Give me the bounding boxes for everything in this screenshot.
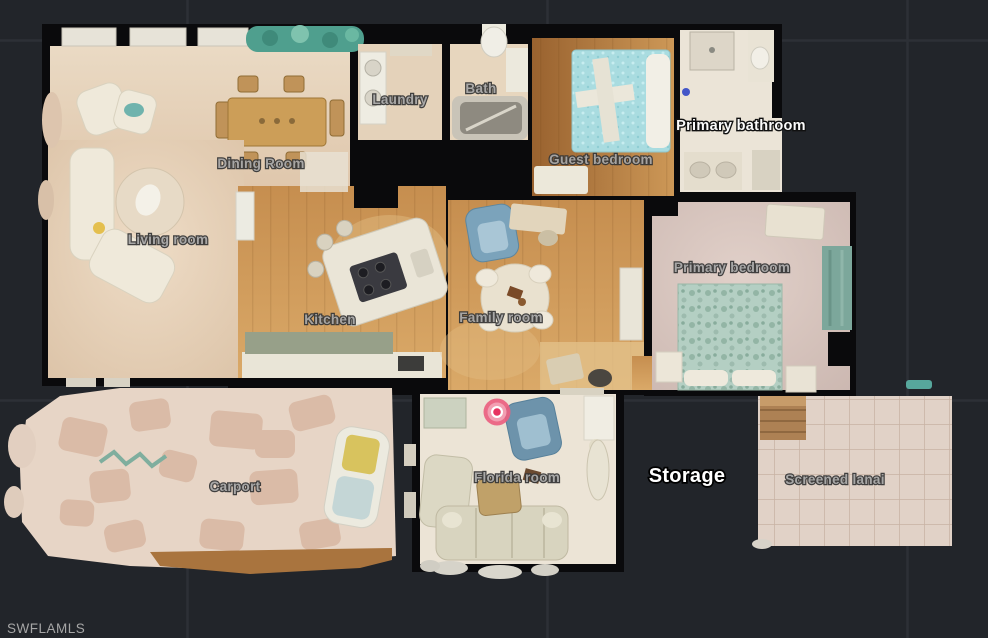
screened-lanai-floor — [752, 380, 952, 549]
floorplan-canvas[interactable]: Laundry Bath Guest bedroom Primary bathr… — [0, 0, 988, 638]
room-label-florida-room: Florida room — [474, 470, 560, 485]
position-marker[interactable] — [484, 399, 511, 426]
room-label-living-room: Living room — [128, 232, 209, 247]
room-label-primary-bedroom: Primary bedroom — [674, 260, 790, 275]
room-label-family-room: Family room — [459, 310, 543, 325]
room-label-guest-bedroom: Guest bedroom — [549, 152, 653, 167]
room-label-bath: Bath — [465, 81, 496, 96]
room-label-screened-lanai: Screened lanai — [785, 472, 885, 487]
room-label-storage: Storage — [649, 465, 726, 487]
guest-bedroom-floor — [532, 38, 674, 196]
room-label-laundry: Laundry — [372, 92, 428, 107]
room-label-primary-bathroom: Primary bathroom — [676, 118, 806, 134]
family-room-floor — [440, 200, 652, 390]
mls-watermark: SWFLAMLS — [7, 621, 85, 636]
room-label-dining-room: Dining Room — [217, 156, 304, 171]
primary-bedroom-floor — [652, 202, 852, 392]
room-label-kitchen: Kitchen — [304, 312, 356, 327]
floorplan-viewport[interactable]: Laundry Bath Guest bedroom Primary bathr… — [0, 0, 988, 638]
carport-floor — [4, 388, 396, 574]
room-label-carport: Carport — [210, 479, 261, 494]
primary-bathroom-floor — [680, 30, 782, 192]
